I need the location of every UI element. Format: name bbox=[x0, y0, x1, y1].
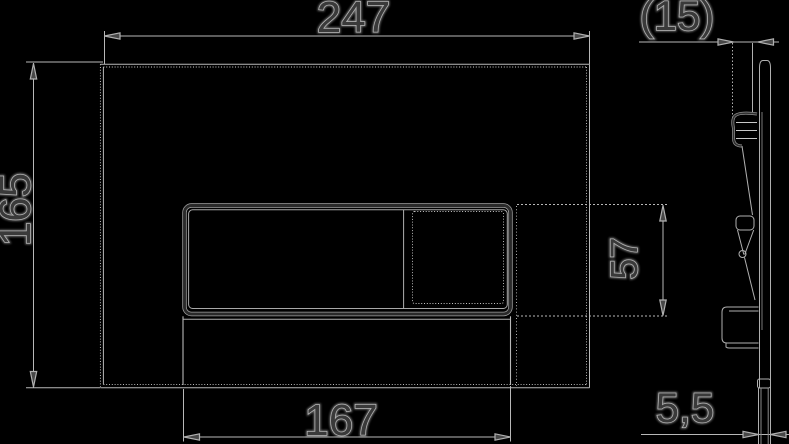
svg-text:167: 167 bbox=[304, 396, 377, 444]
svg-text:165: 165 bbox=[0, 173, 40, 246]
svg-text:247: 247 bbox=[317, 0, 390, 42]
svg-text:5,5: 5,5 bbox=[656, 384, 714, 431]
svg-text:(15): (15) bbox=[640, 0, 715, 39]
svg-text:57: 57 bbox=[604, 237, 646, 279]
